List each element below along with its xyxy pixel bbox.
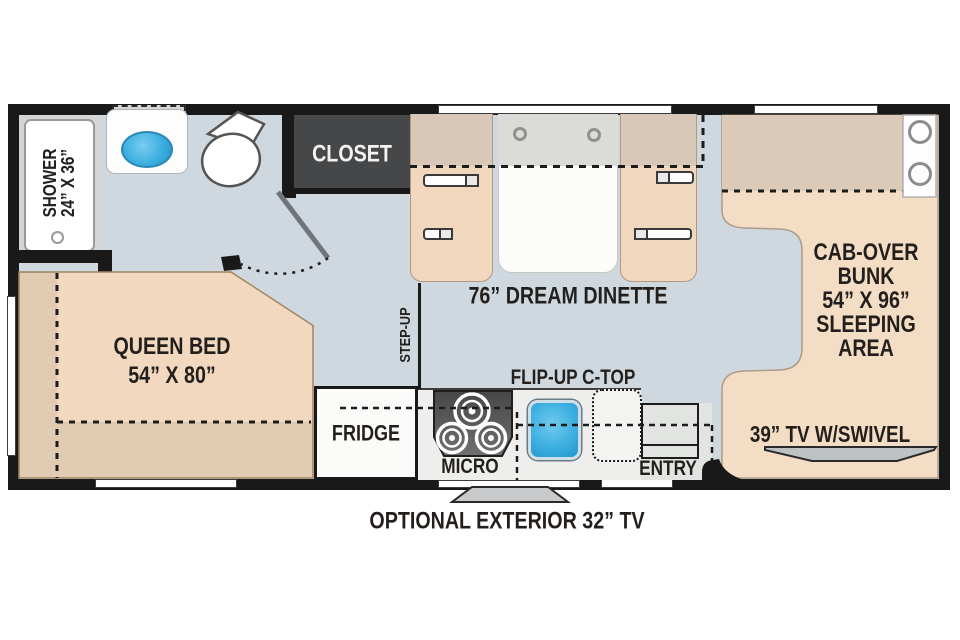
tv-39-label: 39” TV W/SWIVEL bbox=[750, 422, 910, 446]
bathroom-wall bbox=[8, 250, 112, 263]
bathroom-wall-stub bbox=[98, 250, 112, 272]
step-up-divider bbox=[418, 283, 421, 389]
table-cupholder-icon bbox=[587, 128, 601, 142]
entry-step-upper bbox=[641, 403, 699, 446]
closet-label: CLOSET bbox=[312, 141, 392, 166]
seatbelt-icon bbox=[423, 228, 453, 240]
entry-label: ENTRY bbox=[639, 458, 697, 480]
bathroom-sink-icon bbox=[121, 131, 173, 168]
dinette-label: 76” DREAM DINETTE bbox=[468, 283, 667, 308]
seatbelt-icon bbox=[423, 174, 479, 187]
shower-drain-icon bbox=[51, 231, 64, 244]
window-top-bunk bbox=[754, 105, 878, 114]
cab-over-bunk-label: CAB-OVER BUNK 54” X 96” SLEEPING AREA bbox=[814, 241, 919, 361]
step-up-label: STEP-UP bbox=[398, 307, 414, 362]
dinette-bench-left-back bbox=[411, 114, 492, 166]
fridge-label: FRIDGE bbox=[332, 421, 400, 444]
shower-label: SHOWER 24” X 36” bbox=[41, 149, 77, 218]
floor-plan: SHOWER 24” X 36” CLOSET 76” DREAM DINETT… bbox=[0, 0, 960, 640]
window-left-bedroom bbox=[7, 296, 16, 456]
seatbelt-icon bbox=[634, 228, 692, 240]
window-top-dinette bbox=[438, 105, 672, 114]
window-bottom-kitchen bbox=[438, 480, 580, 488]
exterior-tv-label: OPTIONAL EXTERIOR 32” TV bbox=[369, 508, 644, 533]
table-cupholder-icon bbox=[513, 127, 527, 141]
micro-label: MICRO bbox=[441, 456, 498, 478]
dinette-bench-right-back bbox=[621, 114, 696, 166]
kitchen-sink-icon bbox=[528, 400, 581, 460]
queen-bed-label: QUEEN BED 54” X 80” bbox=[113, 332, 230, 390]
seatbelt-icon bbox=[656, 171, 694, 184]
window-bottom-bedroom bbox=[95, 479, 237, 488]
flip-up-countertop bbox=[592, 389, 642, 462]
flip-up-ctop-label: FLIP-UP C-TOP bbox=[511, 367, 636, 389]
